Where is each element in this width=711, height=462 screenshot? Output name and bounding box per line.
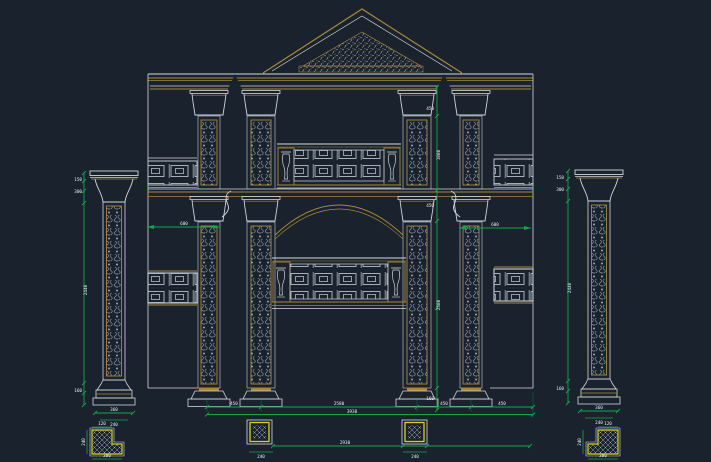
- dim-text: 160: [556, 386, 564, 392]
- dim-text: 160: [426, 396, 434, 402]
- dim-text: 2930: [340, 440, 351, 446]
- pillar-elevation-right: [575, 170, 623, 404]
- corbel-right: [451, 191, 460, 217]
- dim-text: 1080: [436, 149, 442, 160]
- dim-text: 240: [595, 420, 603, 426]
- dim-text: 160: [74, 388, 82, 394]
- base: [188, 388, 230, 407]
- capital: [190, 91, 228, 116]
- dim-text: 2440: [83, 284, 89, 295]
- arch: [275, 205, 403, 239]
- dim-text: 600: [180, 221, 188, 227]
- dim-text: 450: [440, 401, 448, 407]
- dim-text: 240: [411, 454, 419, 460]
- corbel-left: [222, 191, 231, 217]
- baluster-vase: [281, 152, 291, 181]
- pavilion-column-right: [396, 91, 438, 407]
- pediment: [263, 9, 462, 73]
- roof-notch-right: [436, 74, 452, 91]
- dim-text: 2440: [567, 282, 573, 293]
- dim-text: 450: [230, 401, 238, 407]
- dim-text: 240: [257, 454, 265, 460]
- dim-text: 150: [556, 175, 564, 181]
- facade-columns: [188, 91, 492, 407]
- cad-canvas[interactable]: 150 300 2440 160 360 240 120 240 300 150…: [0, 0, 711, 462]
- baluster-vase: [387, 152, 397, 181]
- section-detail-right: [586, 428, 620, 456]
- dim-text: 240: [110, 422, 118, 428]
- pediment-frieze-strip: [299, 66, 423, 72]
- pillar-elevation-left: [90, 171, 138, 405]
- roof-notch-left: [227, 74, 243, 91]
- balustrade-upper-center: [277, 144, 401, 188]
- dim-text: 300: [599, 453, 607, 459]
- plan-square-right: [402, 420, 427, 444]
- dim-text: 300: [74, 189, 82, 195]
- dim-text: 3930: [347, 409, 358, 415]
- dim-text: 360: [110, 407, 118, 413]
- dim-text: 300: [103, 453, 111, 459]
- dim-text: 150: [74, 177, 82, 183]
- dim-text: 300: [556, 187, 564, 193]
- dim-text: 450: [426, 106, 434, 112]
- pediment-tympanum: [303, 32, 421, 66]
- dim-text: 240: [81, 438, 87, 446]
- cad-viewport[interactable]: 150 300 2440 160 360 240 120 240 300 150…: [0, 0, 711, 462]
- dim-text: 450: [498, 401, 506, 407]
- dim-text: 2580: [436, 299, 442, 310]
- dim-text: 120: [604, 421, 612, 427]
- dim-text: 240: [577, 438, 583, 446]
- balustrade-lower-center: [272, 258, 406, 309]
- pavilion-column-left: [240, 91, 282, 407]
- dim-text: 2580: [334, 401, 345, 407]
- wing-pilaster-left: [188, 91, 230, 407]
- baluster-vase: [391, 268, 401, 297]
- section-detail-left: [90, 428, 124, 456]
- dim-text: 360: [595, 405, 603, 411]
- plan-square-left: [247, 420, 272, 444]
- dim-text: 600: [491, 222, 499, 228]
- dim-text: 120: [98, 421, 106, 427]
- dim-text: 450: [426, 203, 434, 209]
- baluster-vase: [276, 268, 286, 297]
- wing-pilaster-right: [450, 91, 492, 407]
- wing-left-railings: [148, 158, 197, 305]
